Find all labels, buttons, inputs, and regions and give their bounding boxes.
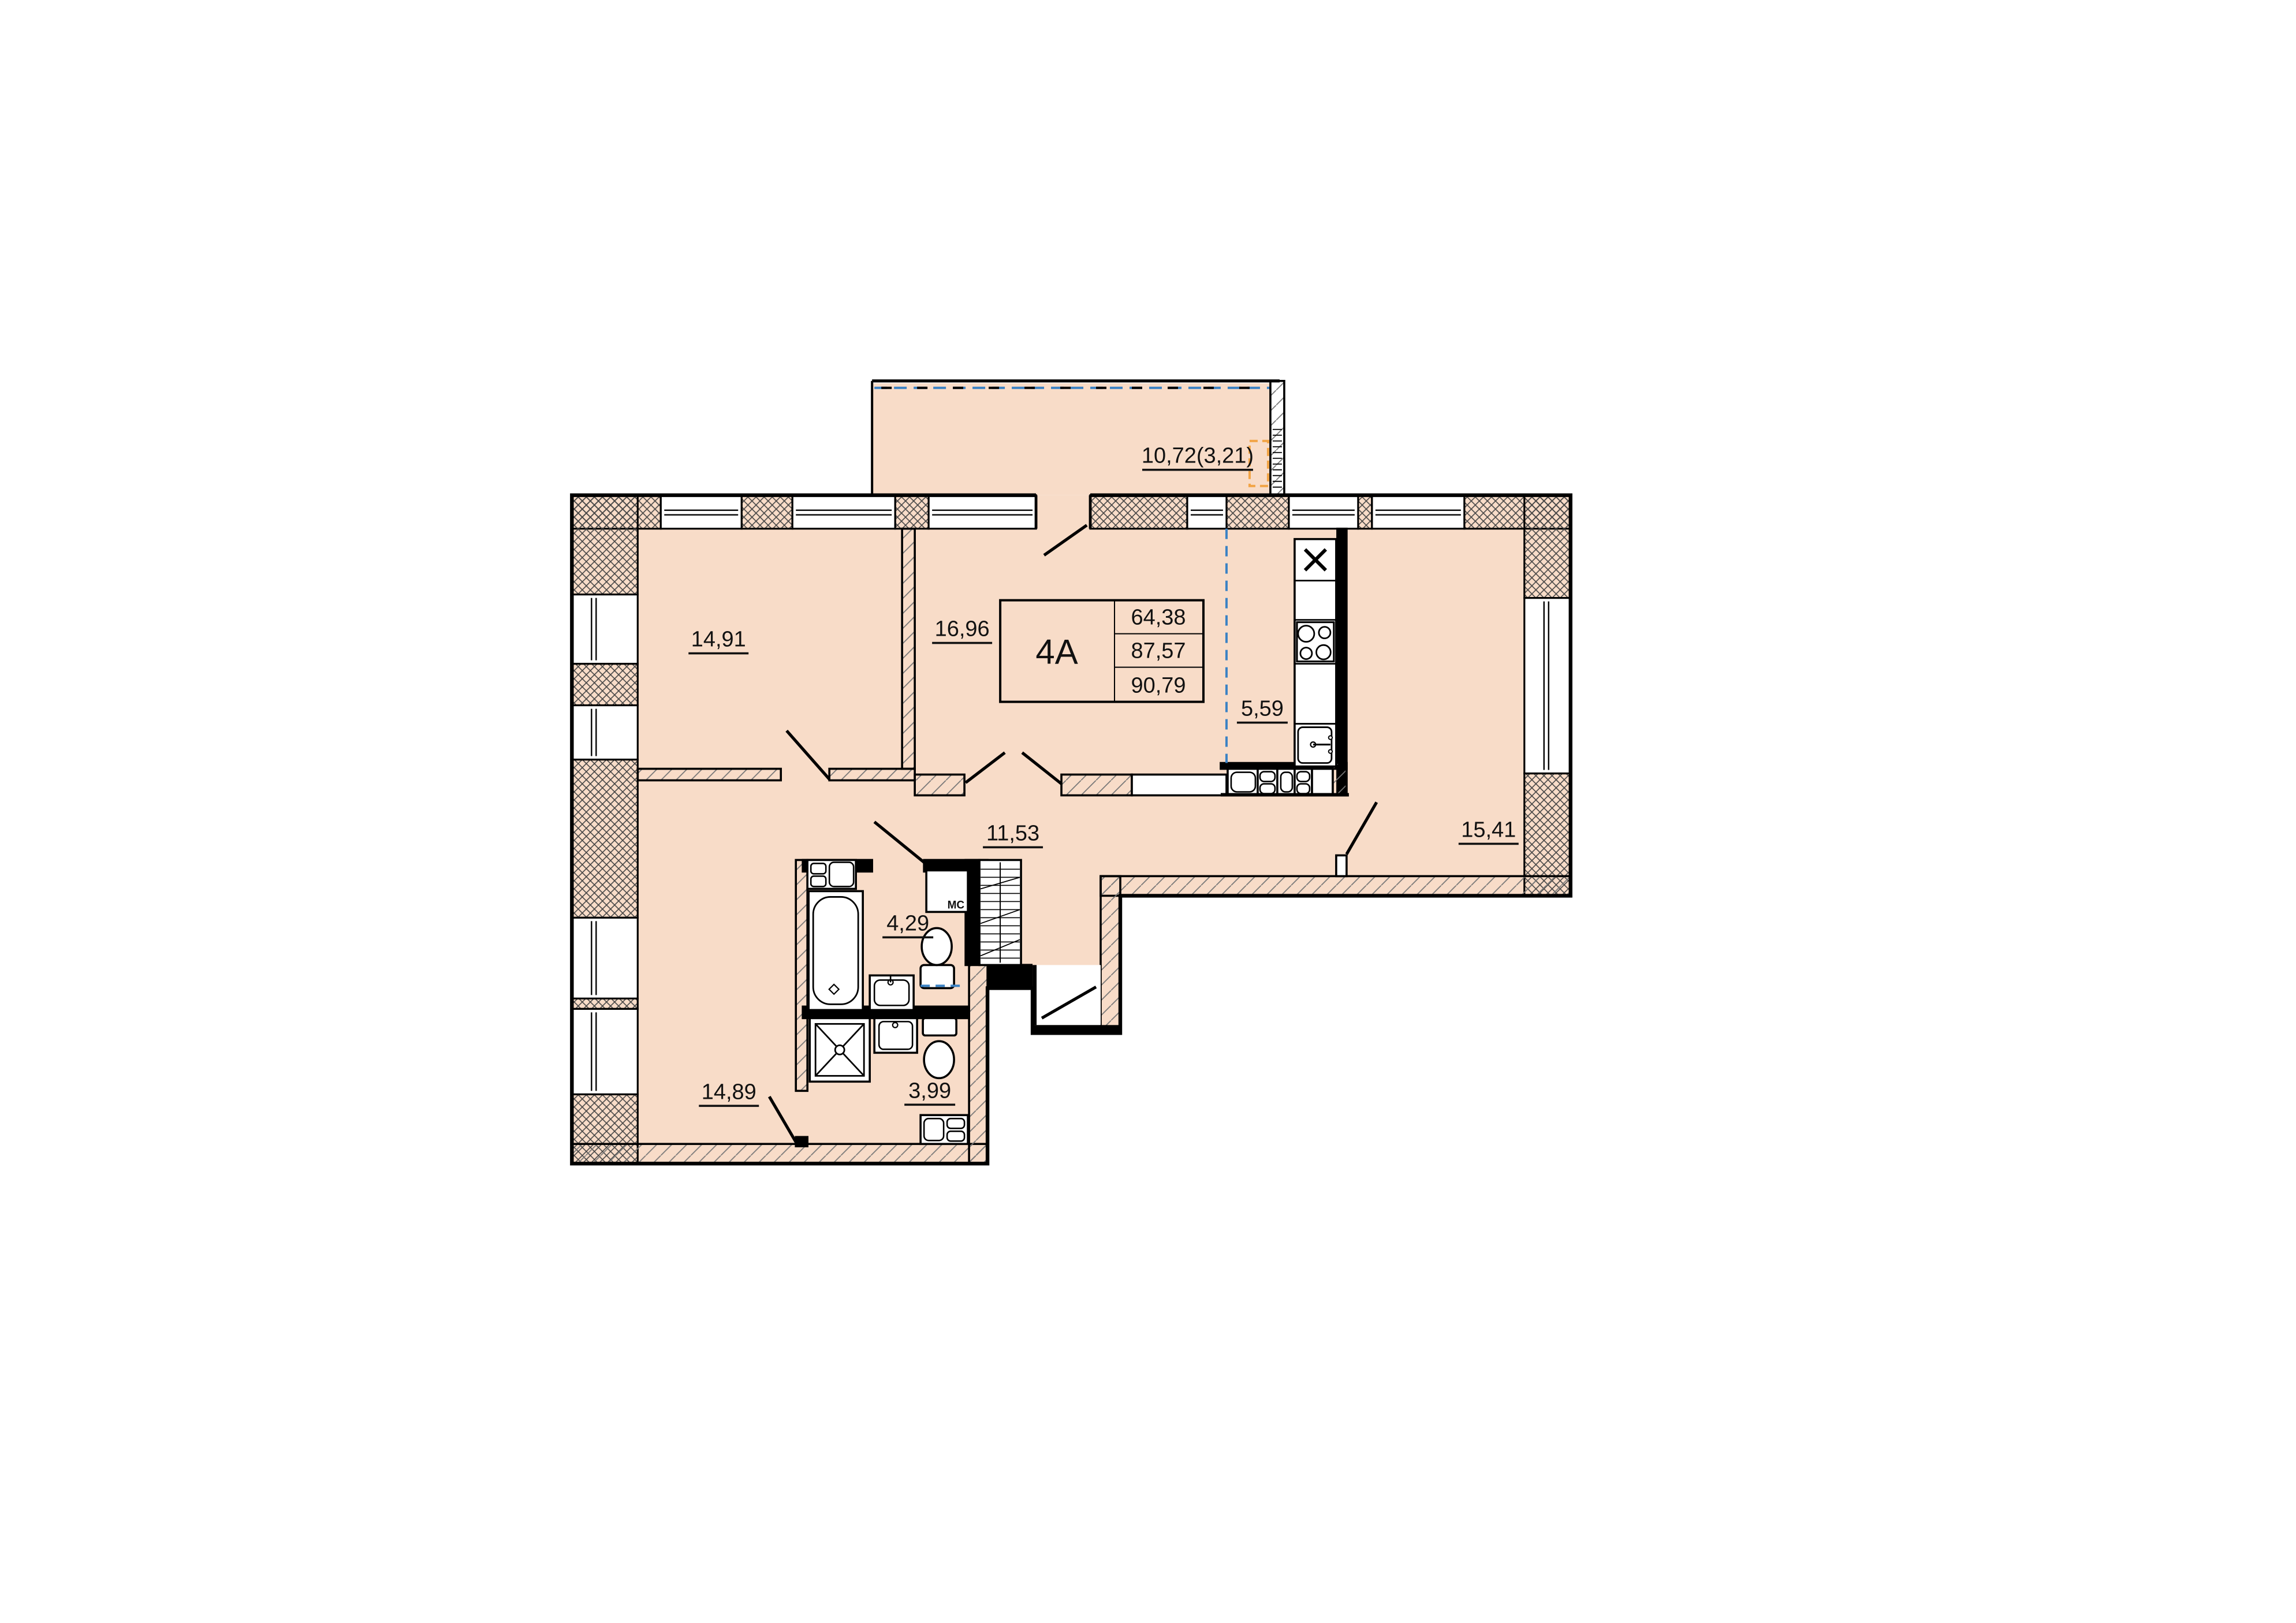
washer-spot-box: МС <box>926 870 968 912</box>
wc-sink <box>874 1018 917 1053</box>
wall-left-block-east <box>969 964 987 1163</box>
wall-bottom-left-block <box>572 1144 987 1163</box>
balcony-right-wall <box>1270 381 1284 495</box>
label-living: 16,96 <box>935 617 990 641</box>
label-hall: 11,53 <box>986 821 1039 845</box>
kitchen-sink <box>1298 727 1332 763</box>
label-bed3: 14,89 <box>702 1080 756 1104</box>
floor-plan-drawing: МС <box>0 0 2296 1623</box>
unit-total-area: 90,79 <box>1131 674 1186 698</box>
hall-bottom-wall <box>987 964 1033 988</box>
vent-shaft <box>979 860 1021 965</box>
unit-apartment-area: 87,57 <box>1131 639 1186 663</box>
kitchen-counter-strip <box>1295 539 1336 767</box>
exterior-right-wall <box>1525 495 1571 896</box>
bath-sink <box>870 975 914 1010</box>
kitchen-duct-cell <box>1312 769 1333 794</box>
exterior-left-wall <box>572 495 638 1164</box>
label-balcony: 10,72(3,21) <box>1142 444 1254 468</box>
shower-tray <box>810 1018 870 1081</box>
washer-spot-label: МС <box>948 899 965 911</box>
unit-id: 4A <box>1035 633 1078 671</box>
wall-step-east <box>1101 876 1120 1033</box>
bathtub <box>808 891 863 1010</box>
floor-plan-page: МС <box>0 0 2296 1623</box>
wall-bed3-bath <box>796 860 807 1091</box>
wc-corner-unit <box>920 1115 968 1144</box>
washer-unit <box>807 860 856 889</box>
label-wc: 3,99 <box>908 1079 951 1103</box>
label-bed2: 15,41 <box>1461 818 1516 842</box>
balcony-floor <box>872 383 1270 495</box>
label-kitchen: 5,59 <box>1241 697 1284 721</box>
stove <box>1297 622 1334 662</box>
wc-toilet <box>923 1018 956 1078</box>
wall-bed1-bed3-a <box>638 769 781 781</box>
wall-bottom-right-room <box>1101 876 1571 896</box>
wall-living-hall-a <box>915 775 964 796</box>
wall-living-hall-b <box>1061 775 1132 796</box>
unit-living-area: 64,38 <box>1131 606 1186 630</box>
wall-living-hall-c <box>1132 775 1227 796</box>
kitchen-duct-hatch <box>1333 763 1347 794</box>
wall-bed1-living <box>902 529 915 769</box>
wall-kitchen-bed2 <box>1337 529 1347 794</box>
door-pillar-bed2 <box>1336 855 1347 876</box>
entry-alcove <box>987 964 1120 1033</box>
wall-bed1-bed3-b <box>829 769 915 781</box>
label-bed1: 14,91 <box>691 628 746 652</box>
label-bath: 4,29 <box>886 911 929 935</box>
